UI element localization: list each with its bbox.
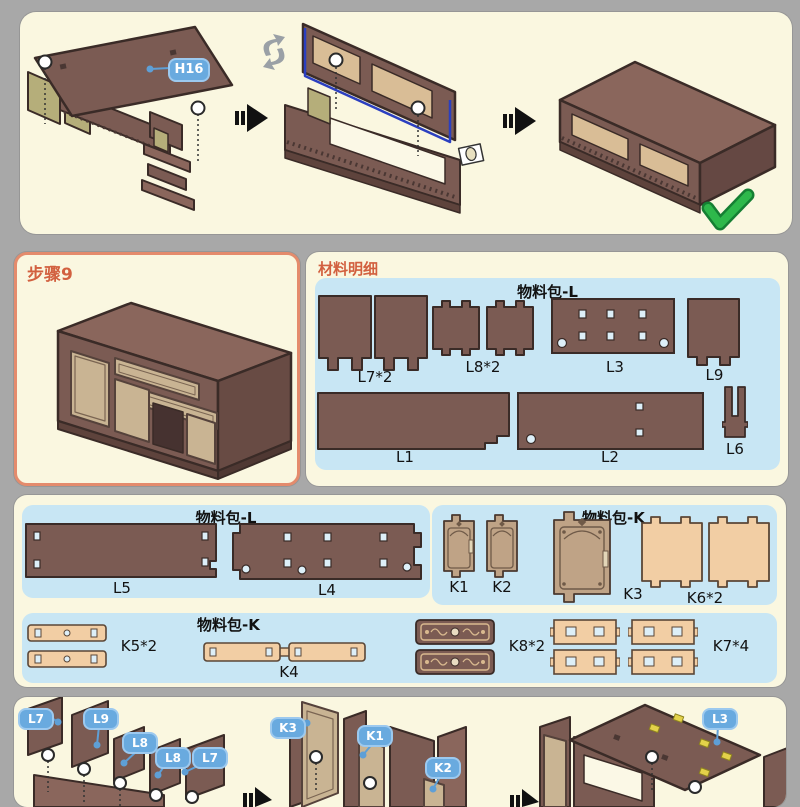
- part-badge: L8: [122, 732, 158, 754]
- step9-panel: 步骤9: [14, 252, 300, 486]
- part-l6-shape: [722, 386, 748, 438]
- part-label-k2: K2: [487, 578, 517, 596]
- part-label-k1: K1: [444, 578, 474, 596]
- part-badge: L9: [83, 708, 119, 730]
- checkmark-icon: [708, 195, 748, 224]
- part-label-l3: L3: [590, 358, 640, 376]
- part-l9-shape: [687, 298, 740, 366]
- pack-k-bottom-box: 物料包-K K5*2 K4 K8*2: [22, 613, 777, 683]
- part-k6-shape: [641, 516, 703, 588]
- pack-title: 物料包-K: [197, 614, 260, 635]
- part-label-l9: L9: [697, 366, 732, 384]
- part-k6-shape: [708, 516, 770, 588]
- packs-panel: 物料包-L L5 L4 物料包-K K1: [14, 495, 786, 687]
- part-label-l5: L5: [92, 579, 152, 597]
- step-arrow-icon: [503, 107, 536, 135]
- part-badge: L7: [18, 708, 54, 730]
- part-l4-shape: [232, 523, 422, 580]
- fitting-callout-icon: [459, 144, 484, 165]
- part-k5-shape: [27, 624, 107, 642]
- part-badge: K3: [270, 717, 306, 739]
- part-badge-h16: H16: [168, 58, 210, 82]
- part-l1-shape: [317, 392, 510, 450]
- part-l3-shape: [551, 298, 675, 354]
- assembly-sequence-panel: L7 L9 L8 L8 L7 K3 K1 K2 L3: [14, 697, 786, 807]
- top-step-sequence-panel: H16: [20, 12, 792, 234]
- step-arrow-icon: [235, 104, 268, 132]
- part-k4-shape: [202, 640, 367, 664]
- part-label-l6: L6: [719, 440, 751, 458]
- step3-finished-body: [560, 62, 775, 224]
- part-badge: L3: [702, 708, 738, 730]
- part-label-k5: K5*2: [114, 637, 164, 655]
- instruction-sheet-page: { "colors": { "page_bg": "#A8A8A8", "pan…: [0, 0, 800, 800]
- pack-l-box: 物料包-L L5 L4: [22, 505, 430, 598]
- part-label-l1: L1: [375, 448, 435, 466]
- part-l5-shape: [25, 523, 217, 578]
- part-k7-shape: [550, 619, 620, 645]
- part-k2-shape: [483, 514, 521, 578]
- part-label-l4: L4: [297, 581, 357, 599]
- part-badge: L7: [192, 747, 228, 769]
- part-k7-shape: [550, 649, 620, 675]
- materials-detail-panel: 材料明细 物料包-L L7*2 L8*2 L3 L9: [306, 252, 788, 486]
- part-k3-shape: [548, 511, 616, 603]
- part-l7-shape: [374, 295, 428, 371]
- part-k8-shape: [415, 649, 495, 675]
- part-badge: L8: [155, 747, 191, 769]
- part-k7-shape: [628, 619, 698, 645]
- part-k8-shape: [415, 619, 495, 645]
- part-label-k4: K4: [274, 663, 304, 681]
- part-label-l7: L7*2: [335, 368, 415, 386]
- part-l8-shape: [486, 300, 534, 356]
- pack-k-top-box: 物料包-K K1 K2 K3 K6*2: [432, 505, 777, 605]
- materials-title: 材料明细: [318, 258, 378, 279]
- part-k7-shape: [628, 649, 698, 675]
- part-label-k6: K6*2: [680, 589, 730, 607]
- step9-cabinet-illustration: [17, 255, 297, 483]
- material-pack-l-box: 物料包-L L7*2 L8*2 L3 L9 L1: [315, 278, 780, 470]
- step1-place-top-board: [28, 27, 232, 210]
- part-l8-shape: [432, 300, 480, 356]
- rotate-icon: [263, 34, 285, 70]
- part-l2-shape: [517, 392, 704, 450]
- part-label-l2: L2: [580, 448, 640, 466]
- part-badge: K2: [425, 757, 461, 779]
- part-label-k8: K8*2: [502, 637, 552, 655]
- step2-attach-back-panel: [263, 24, 484, 213]
- part-label-k7: K7*4: [706, 637, 756, 655]
- part-k5-shape: [27, 650, 107, 668]
- assembly-steps-illustration: [20, 12, 792, 234]
- part-badge: K1: [357, 725, 393, 747]
- part-k1-shape: [440, 514, 478, 578]
- part-label-l8: L8*2: [453, 358, 513, 376]
- part-l7-shape: [318, 295, 372, 371]
